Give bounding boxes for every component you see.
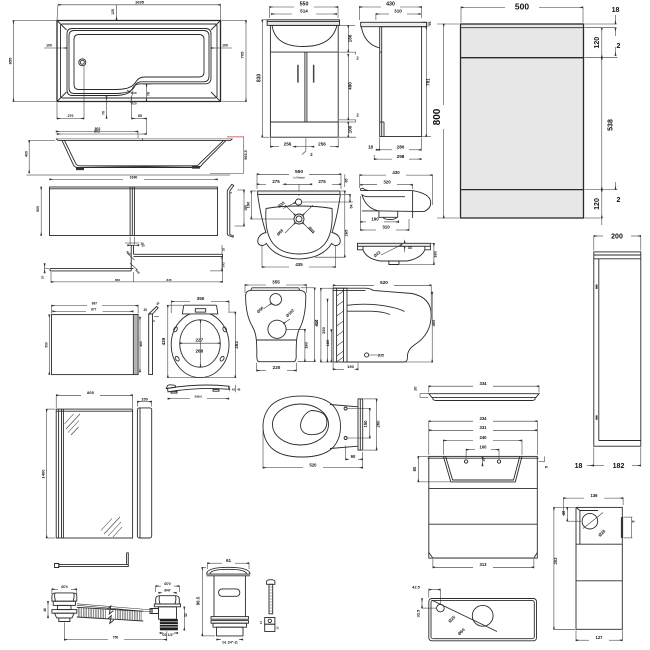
svg-text:R30: R30 [131,91,137,95]
svg-text:48: 48 [43,608,47,612]
svg-text:96.5: 96.5 [196,596,201,605]
svg-text:313: 313 [480,562,488,567]
svg-text:256: 256 [284,141,292,146]
svg-text:500: 500 [36,206,40,212]
svg-text:256: 256 [318,141,326,146]
svg-text:120: 120 [594,198,601,210]
svg-text:125: 125 [111,9,115,15]
svg-text:383: 383 [234,341,239,349]
svg-text:805: 805 [87,390,94,395]
svg-text:430: 430 [386,2,395,8]
svg-text:55: 55 [428,22,432,26]
svg-text:485: 485 [139,341,143,347]
svg-text:18: 18 [575,463,583,470]
svg-text:400: 400 [24,151,28,157]
svg-text:90: 90 [351,454,356,459]
svg-text:180: 180 [304,341,309,348]
svg-text:85: 85 [138,114,142,118]
svg-text:331: 331 [480,425,488,430]
svg-text:100: 100 [480,444,488,449]
svg-text:78: 78 [147,92,151,96]
svg-text:400: 400 [431,319,436,326]
svg-text:260: 260 [376,420,381,428]
svg-text:18: 18 [612,7,620,14]
svg-text:265: 265 [344,229,349,236]
svg-text:20: 20 [144,308,148,312]
svg-text:100: 100 [46,44,52,48]
svg-text:500: 500 [515,2,529,12]
svg-text:514: 514 [300,9,308,14]
svg-text:334: 334 [480,416,488,421]
svg-text:G1 1/4"-11: G1 1/4"-11 [222,641,238,645]
svg-text:100: 100 [222,44,228,48]
svg-text:1400: 1400 [41,469,46,479]
svg-text:Ø35: Ø35 [378,354,385,358]
svg-text:334: 334 [480,381,488,386]
svg-text:800: 800 [432,108,443,125]
svg-text:35: 35 [142,244,146,248]
svg-text:355: 355 [272,280,280,285]
svg-text:275: 275 [272,179,280,184]
svg-text:200: 200 [611,233,623,240]
svg-text:25: 25 [41,276,45,280]
svg-text:61: 61 [226,558,232,563]
svg-text:1690: 1690 [130,176,138,180]
svg-text:500: 500 [45,342,49,348]
svg-text:G1 1/2": G1 1/2" [162,633,174,637]
svg-text:120: 120 [594,37,601,49]
svg-text:40: 40 [561,510,566,515]
svg-text:48: 48 [237,387,241,391]
svg-text:42: 42 [232,387,236,391]
svg-text:320: 320 [383,179,391,184]
svg-text:32.5: 32.5 [416,609,421,618]
svg-text:150: 150 [141,396,148,401]
svg-text:R20: R20 [131,102,137,106]
svg-text:190: 190 [347,364,354,369]
svg-text:802: 802 [95,127,101,131]
svg-text:520: 520 [310,462,318,467]
svg-text:85: 85 [345,179,349,183]
svg-text:398.5: 398.5 [195,395,203,399]
svg-text:54: 54 [350,205,354,209]
svg-text:190: 190 [245,201,250,208]
svg-text:350: 350 [197,296,205,301]
svg-text:10: 10 [413,386,418,391]
svg-text:182: 182 [613,463,625,470]
svg-text:240: 240 [480,435,488,440]
svg-text:520: 520 [380,280,388,285]
svg-text:127: 127 [596,635,604,640]
svg-text:2: 2 [617,43,621,50]
svg-text:705: 705 [240,51,245,58]
svg-text:33: 33 [408,246,412,250]
svg-text:190: 190 [371,217,379,222]
svg-text:227: 227 [195,338,203,343]
svg-text:Ø70: Ø70 [164,582,171,586]
svg-text:136: 136 [591,493,599,498]
svg-text:80: 80 [412,466,417,471]
svg-text:2: 2 [617,197,621,204]
svg-text:180: 180 [325,339,330,346]
svg-text:275: 275 [318,179,326,184]
svg-text:Ø47: Ø47 [164,588,171,592]
svg-text:697: 697 [92,302,98,306]
svg-text:550: 550 [295,169,303,175]
svg-text:18: 18 [368,145,374,150]
svg-text:750: 750 [113,635,119,639]
svg-text:280: 280 [397,145,405,150]
svg-text:268: 268 [195,349,203,354]
svg-text:42.5: 42.5 [412,584,421,589]
svg-text:429: 429 [161,337,166,345]
svg-text:310: 310 [382,225,390,230]
svg-text:220: 220 [273,365,281,370]
svg-text:298: 298 [397,154,405,159]
svg-text:350: 350 [321,326,326,333]
svg-text:270: 270 [68,114,74,118]
svg-text:965.5: 965.5 [244,150,248,160]
svg-text:845: 845 [166,278,171,282]
svg-text:410: 410 [314,319,319,326]
svg-text:430: 430 [392,170,400,175]
svg-text:1695: 1695 [135,0,145,4]
svg-text:677: 677 [91,307,97,311]
svg-text:(+/-5mm): (+/-5mm) [294,176,305,180]
svg-text:Ø74: Ø74 [61,585,68,589]
svg-text:855: 855 [8,57,13,64]
svg-text:150: 150 [363,420,368,428]
svg-text:550: 550 [300,2,309,8]
svg-text:435: 435 [295,262,303,267]
svg-text:538: 538 [607,119,614,131]
svg-text:830: 830 [256,74,262,83]
svg-text:76: 76 [101,111,105,115]
svg-text:852: 852 [115,278,120,282]
svg-text:180: 180 [433,250,438,257]
svg-text:310: 310 [394,9,402,14]
